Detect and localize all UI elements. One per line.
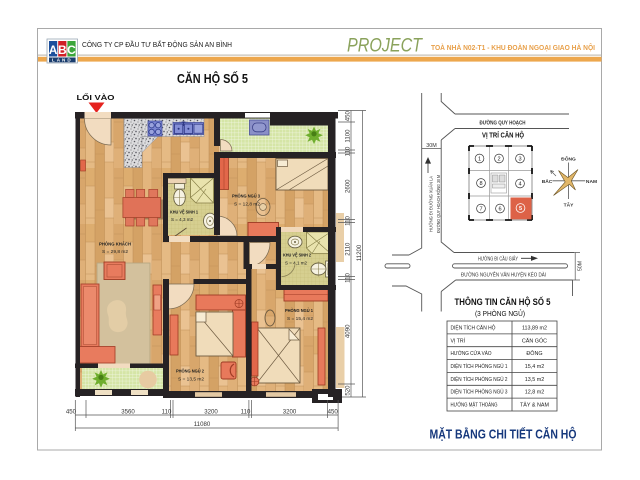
svg-text:110: 110 <box>162 409 172 416</box>
svg-text:3: 3 <box>518 157 521 163</box>
svg-text:50M: 50M <box>578 261 584 271</box>
svg-text:2600: 2600 <box>345 179 352 193</box>
svg-text:THÔNG TIN CĂN HỘ SỐ 5: THÔNG TIN CĂN HỘ SỐ 5 <box>455 296 551 307</box>
svg-text:3200: 3200 <box>204 409 218 416</box>
svg-text:ĐƯỜNG NGUYỄN VĂN HUYỆN KÉO DÀI: ĐƯỜNG NGUYỄN VĂN HUYỆN KÉO DÀI <box>461 271 546 279</box>
svg-text:5: 5 <box>519 206 522 212</box>
svg-text:LAND: LAND <box>52 58 73 63</box>
svg-text:450: 450 <box>66 409 77 416</box>
svg-text:13,5 m2: 13,5 m2 <box>525 377 544 383</box>
svg-text:110: 110 <box>345 216 352 226</box>
svg-text:11200: 11200 <box>356 244 363 261</box>
svg-text:1100: 1100 <box>345 129 352 143</box>
svg-text:113,89 m2: 113,89 m2 <box>522 326 547 332</box>
svg-text:HƯỚNG ĐI CẦU GIẤY: HƯỚNG ĐI CẦU GIẤY <box>478 255 519 262</box>
svg-text:12,8 m2: 12,8 m2 <box>525 390 544 396</box>
svg-text:TÂY & NAM: TÂY & NAM <box>520 402 549 409</box>
svg-text:S = 13,5 m2: S = 13,5 m2 <box>178 377 204 382</box>
svg-text:MẶT BẰNG CHI TIẾT CĂN HỘ: MẶT BẰNG CHI TIẾT CĂN HỘ <box>430 427 577 442</box>
svg-text:ĐÔNG: ĐÔNG <box>526 350 542 357</box>
svg-text:HƯỚNG ĐI ĐƯỜNG XUÂN LA: HƯỚNG ĐI ĐƯỜNG XUÂN LA <box>428 175 435 232</box>
svg-text:DIỆN TÍCH PHÒNG NGỦ 3: DIỆN TÍCH PHÒNG NGỦ 3 <box>451 388 508 396</box>
svg-text:11080: 11080 <box>194 421 211 428</box>
svg-text:7: 7 <box>479 207 482 213</box>
svg-text:CĂN GÓC: CĂN GÓC <box>522 337 547 344</box>
svg-text:KHU VỆ SINH 1: KHU VỆ SINH 1 <box>170 210 198 215</box>
svg-text:LỐI VÀO: LỐI VÀO <box>77 92 116 102</box>
svg-text:HƯỚNG CỬA VÀO: HƯỚNG CỬA VÀO <box>451 350 492 357</box>
svg-text:A: A <box>49 43 58 57</box>
svg-text:3560: 3560 <box>121 409 135 416</box>
svg-text:450: 450 <box>328 409 339 416</box>
svg-text:S = 15,4 m2: S = 15,4 m2 <box>287 316 313 321</box>
svg-text:110: 110 <box>345 273 352 283</box>
svg-text:DIỆN TÍCH PHÒNG NGỦ 2: DIỆN TÍCH PHÒNG NGỦ 2 <box>451 375 508 383</box>
svg-text:TOÀ NHÀ N02-T1 - KHU ĐOÀN NGOẠ: TOÀ NHÀ N02-T1 - KHU ĐOÀN NGOẠI GIAO HÀ … <box>431 43 595 52</box>
svg-text:PROJECT: PROJECT <box>347 36 423 57</box>
svg-text:ĐƯỜNG QUY HOẠCH: ĐƯỜNG QUY HOẠCH <box>480 119 526 127</box>
svg-text:15,4 m2: 15,4 m2 <box>525 364 544 370</box>
svg-text:VỊ TRÍ: VỊ TRÍ <box>451 337 466 344</box>
svg-text:6: 6 <box>498 207 501 213</box>
svg-text:2: 2 <box>497 157 500 163</box>
svg-text:CĂN HỘ SỐ 5: CĂN HỘ SỐ 5 <box>177 71 248 86</box>
svg-text:DIỆN TÍCH CĂN HỘ: DIỆN TÍCH CĂN HỘ <box>451 324 496 332</box>
svg-text:2110: 2110 <box>345 242 352 256</box>
svg-text:VỊ TRÍ CĂN HỘ: VỊ TRÍ CĂN HỘ <box>482 131 524 140</box>
svg-text:520: 520 <box>345 385 352 396</box>
svg-text:ĐƯỜNG QUY HOẠCH RỘNG 30 M: ĐƯỜNG QUY HOẠCH RỘNG 30 M <box>435 175 442 233</box>
svg-text:C: C <box>67 43 76 57</box>
svg-text:S = 12,8 m2: S = 12,8 m2 <box>234 202 260 207</box>
svg-text:30M: 30M <box>426 143 437 149</box>
svg-text:S = 4,1 m2: S = 4,1 m2 <box>285 261 308 266</box>
svg-text:3200: 3200 <box>283 409 297 416</box>
svg-text:B: B <box>58 43 67 57</box>
svg-text:HƯỚNG MẶT THOÁNG: HƯỚNG MẶT THOÁNG <box>451 402 498 409</box>
svg-text:8: 8 <box>479 181 482 187</box>
svg-text:S = 4,3 m2: S = 4,3 m2 <box>171 217 194 222</box>
svg-text:(3 PHÒNG NGỦ): (3 PHÒNG NGỦ) <box>475 309 525 318</box>
svg-text:4: 4 <box>518 182 521 188</box>
svg-text:NAM: NAM <box>586 179 597 185</box>
svg-text:1: 1 <box>478 157 481 163</box>
svg-text:450: 450 <box>345 111 352 122</box>
svg-text:110: 110 <box>345 146 352 156</box>
svg-text:4090: 4090 <box>345 324 352 338</box>
svg-text:TÂY: TÂY <box>564 202 575 209</box>
svg-text:DIỆN TÍCH PHÒNG NGỦ 1: DIỆN TÍCH PHÒNG NGỦ 1 <box>451 362 508 370</box>
svg-text:S = 29,8 m2: S = 29,8 m2 <box>102 249 128 254</box>
svg-text:110: 110 <box>241 409 251 416</box>
svg-text:KHU VỆ SINH 2: KHU VỆ SINH 2 <box>283 253 311 258</box>
